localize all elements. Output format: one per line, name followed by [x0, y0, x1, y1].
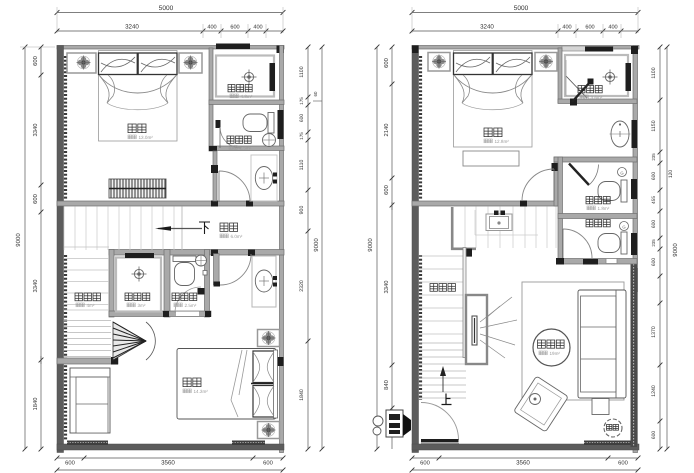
- svg-text:3240: 3240: [480, 24, 494, 31]
- svg-text:400: 400: [608, 25, 617, 31]
- svg-text:175: 175: [299, 97, 304, 105]
- svg-text:9000: 9000: [672, 243, 679, 257]
- svg-text:120: 120: [668, 170, 674, 179]
- svg-text:1110: 1110: [299, 160, 305, 171]
- svg-text:1150: 1150: [651, 120, 657, 131]
- svg-text:3560: 3560: [516, 460, 530, 467]
- svg-text:1370: 1370: [651, 326, 657, 338]
- svg-text:600: 600: [299, 114, 305, 123]
- svg-text:840: 840: [383, 380, 390, 390]
- svg-text:600: 600: [651, 431, 657, 440]
- svg-text:9000: 9000: [367, 238, 374, 252]
- svg-text:2140: 2140: [383, 124, 390, 137]
- svg-text:1840: 1840: [32, 398, 39, 411]
- svg-text:19m²: 19m²: [550, 351, 561, 356]
- svg-text:5000: 5000: [514, 5, 529, 12]
- svg-text:600: 600: [32, 194, 39, 204]
- svg-text:9000: 9000: [15, 233, 22, 247]
- svg-text:600: 600: [651, 172, 657, 181]
- svg-text:9000: 9000: [313, 238, 320, 252]
- svg-text:600: 600: [383, 185, 390, 195]
- svg-text:900: 900: [299, 206, 305, 215]
- svg-text:5000: 5000: [159, 5, 174, 12]
- svg-text:600: 600: [263, 460, 273, 467]
- svg-text:1840: 1840: [299, 389, 305, 401]
- svg-text:3240: 3240: [125, 24, 139, 31]
- svg-text:235: 235: [651, 153, 656, 161]
- svg-text:60: 60: [313, 91, 318, 96]
- svg-text:G: G: [622, 225, 625, 230]
- svg-text:600: 600: [65, 460, 75, 467]
- svg-text:3.6m²: 3.6m²: [591, 95, 603, 100]
- svg-text:3340: 3340: [32, 124, 39, 137]
- svg-text:600: 600: [651, 258, 657, 267]
- svg-text:4.8m²: 4.8m²: [241, 94, 253, 99]
- svg-text:600: 600: [618, 460, 628, 467]
- svg-text:3340: 3340: [32, 280, 39, 293]
- svg-text:600: 600: [32, 56, 39, 66]
- svg-text:600: 600: [420, 460, 430, 467]
- svg-text:3340: 3340: [383, 281, 390, 294]
- svg-text:400: 400: [253, 25, 262, 31]
- svg-text:455: 455: [651, 196, 657, 204]
- svg-text:600: 600: [651, 220, 657, 229]
- svg-text:4m²: 4m²: [87, 303, 95, 308]
- svg-text:600: 600: [230, 25, 239, 31]
- svg-text:600: 600: [383, 58, 390, 68]
- svg-text:3560: 3560: [161, 460, 175, 467]
- svg-text:14.3m²: 14.3m²: [194, 389, 209, 394]
- svg-text:1100: 1100: [651, 67, 657, 78]
- svg-text:2.5m²: 2.5m²: [185, 303, 197, 308]
- svg-text:1100: 1100: [299, 66, 305, 77]
- svg-text:2.5m²: 2.5m²: [240, 145, 252, 150]
- svg-text:400: 400: [562, 25, 571, 31]
- svg-text:600: 600: [585, 25, 594, 31]
- svg-text:1.8m²: 1.8m²: [598, 206, 610, 211]
- svg-text:1240: 1240: [651, 385, 657, 397]
- svg-text:13.0m²: 13.0m²: [139, 135, 154, 140]
- svg-text:175: 175: [299, 132, 304, 140]
- svg-text:235: 235: [651, 239, 656, 247]
- svg-text:2320: 2320: [299, 280, 305, 292]
- svg-text:6.0m²: 6.0m²: [231, 234, 243, 239]
- svg-text:400: 400: [207, 25, 216, 31]
- svg-text:G: G: [620, 171, 623, 176]
- svg-text:12.8m²: 12.8m²: [495, 139, 510, 144]
- svg-text:3m²: 3m²: [138, 303, 146, 308]
